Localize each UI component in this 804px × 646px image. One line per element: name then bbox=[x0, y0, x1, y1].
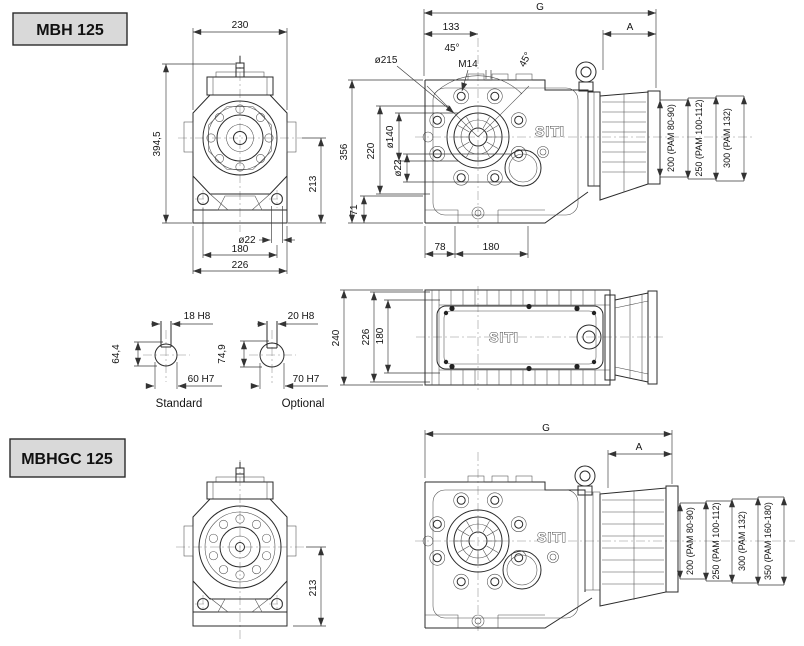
dim-mbhgc-motor: A bbox=[636, 442, 643, 453]
dim-mbh-spigot-dia: ø140 bbox=[385, 125, 396, 148]
mbh-top-dimensions: 240 226 180 bbox=[331, 290, 440, 385]
dim-mbh-front-top-width: 230 bbox=[232, 20, 249, 31]
mbh-top-view: SITI 240 226 180 bbox=[331, 286, 664, 390]
mbh-title-box: MBH 125 bbox=[13, 13, 127, 45]
dim-mbh-top-body: 226 bbox=[361, 328, 372, 345]
dim-mbh-side-overall: G bbox=[536, 2, 544, 13]
mbhgc-pam-350: 350 (PAM 160-180) bbox=[763, 502, 773, 580]
dim-std-bore: 60 H7 bbox=[188, 374, 215, 385]
dim-mbh-angle-left: 45° bbox=[444, 43, 459, 54]
siti-logo-mbhgc: SITI bbox=[537, 529, 567, 545]
dim-std-depth: 64,4 bbox=[111, 344, 122, 364]
dim-mbh-foot-a: 78 bbox=[434, 242, 446, 253]
dim-mbh-side-axis: 220 bbox=[366, 142, 377, 159]
shaft-detail-optional: 20 H8 74,9 70 H7 Optional bbox=[217, 311, 328, 410]
siti-logo-top: SITI bbox=[489, 329, 519, 345]
dim-mbh-tap: M14 bbox=[458, 59, 478, 70]
siti-logo-side: SITI bbox=[535, 123, 565, 139]
dim-mbh-top-cover: 180 bbox=[375, 327, 386, 344]
dim-mbh-front-overall-height: 394,5 bbox=[152, 131, 163, 156]
dim-mbhgc-overall: G bbox=[542, 423, 550, 434]
dim-opt-depth: 74,9 bbox=[217, 344, 228, 364]
dim-opt-keyway: 20 H8 bbox=[288, 311, 315, 322]
dim-mbh-foot-b: 180 bbox=[483, 242, 500, 253]
mbhgc-pam-200: 200 (PAM 80-90) bbox=[685, 507, 695, 575]
mbhgc-front-dimensions: 213 bbox=[293, 547, 326, 626]
dim-mbh-side-height: 356 bbox=[339, 143, 350, 160]
dim-std-keyway: 18 H8 bbox=[184, 311, 211, 322]
dim-opt-bore: 70 H7 bbox=[293, 374, 320, 385]
mbh-pam-200: 200 (PAM 80-90) bbox=[666, 104, 676, 172]
dim-mbh-top-overall: 240 bbox=[331, 329, 342, 346]
shaft-optional-label: Optional bbox=[282, 398, 325, 410]
mbhgc-pam-250: 250 (PAM 100-112) bbox=[711, 502, 721, 579]
dim-mbh-front-foot-span: 180 bbox=[232, 244, 249, 255]
shaft-detail-standard: 18 H8 64,4 60 H7 Standard bbox=[111, 311, 222, 410]
mbhgc-title: MBHGC 125 bbox=[21, 451, 113, 468]
gearbox-dimension-drawing: MBH 125 bbox=[0, 0, 804, 646]
dim-mbh-front-base-width: 226 bbox=[232, 260, 249, 271]
mbhgc-side-dimensions: G A bbox=[425, 423, 672, 488]
dim-mbh-foot-height: 71 bbox=[349, 204, 360, 216]
mbhgc-front-view: 213 bbox=[176, 460, 326, 642]
dim-mbh-bore: ø22 bbox=[393, 159, 404, 177]
mbh-front-view: 230 394,5 213 ø22 180 226 bbox=[152, 20, 326, 274]
dim-mbh-front-axis-height: 213 bbox=[308, 175, 319, 192]
mbh-title: MBH 125 bbox=[36, 22, 104, 39]
mbh-pam-300: 300 (PAM 132) bbox=[722, 108, 732, 168]
mbh-side-view: SITI 200 (PAM 80-90) 250 (PAM 100-112) 3… bbox=[339, 2, 755, 258]
mbhgc-side-view: SITI 200 (PAM 80-90) 250 (PAM 100-112) 3… bbox=[415, 423, 795, 632]
dim-mbh-side-motor: A bbox=[627, 22, 634, 33]
dim-mbh-angle-right: 45° bbox=[517, 51, 534, 70]
dim-mbh-side-flange-to-axis: 133 bbox=[443, 22, 460, 33]
mbhgc-pam-300: 300 (PAM 132) bbox=[737, 511, 747, 571]
dim-mbh-flange-dia: ø215 bbox=[375, 55, 398, 66]
mbh-front-dimensions: 230 394,5 213 ø22 180 226 bbox=[152, 20, 326, 274]
technical-drawing-sheet: MBH 125 bbox=[0, 0, 804, 646]
shaft-standard-label: Standard bbox=[156, 398, 203, 410]
dim-mbhgc-axis-height: 213 bbox=[308, 579, 319, 596]
mbh-pam-table: 200 (PAM 80-90) 250 (PAM 100-112) 300 (P… bbox=[660, 96, 744, 181]
mbh-pam-250: 250 (PAM 100-112) bbox=[694, 99, 704, 176]
mbhgc-title-box: MBHGC 125 bbox=[10, 439, 125, 477]
mbh-side-dimensions: G 133 A 45° 45° M14 ø215 356 220 bbox=[339, 2, 656, 258]
